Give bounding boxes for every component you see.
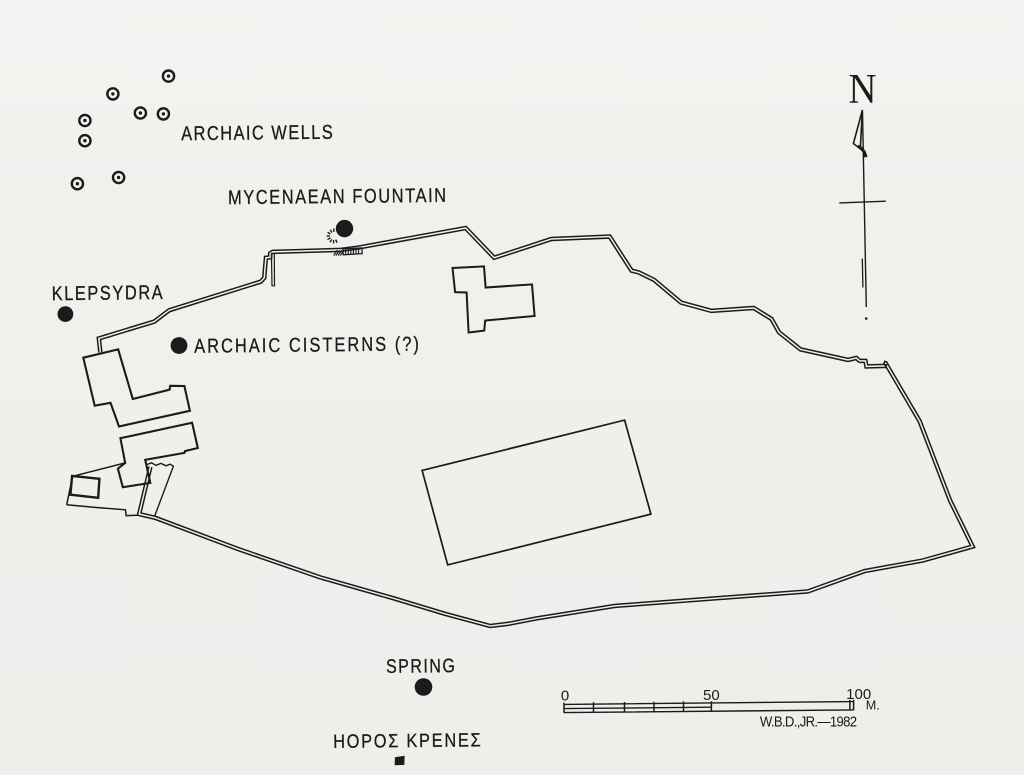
svg-text:KLEPSYDRA: KLEPSYDRA	[52, 280, 164, 304]
svg-text:W.B.D.,JR.—1982: W.B.D.,JR.—1982	[760, 713, 857, 730]
svg-text:0: 0	[561, 688, 569, 705]
svg-text:ΗΟΡΟΣ ΚΡΕΝΕΣ: ΗΟΡΟΣ ΚΡΕΝΕΣ	[333, 729, 481, 752]
svg-text:M.: M.	[866, 699, 880, 713]
svg-text:N: N	[849, 67, 877, 113]
svg-text:MYCENAEAN FOUNTAIN: MYCENAEAN FOUNTAIN	[228, 183, 446, 208]
svg-text:SPRING: SPRING	[386, 655, 455, 678]
svg-text:ARCHAIC CISTERNS (?): ARCHAIC CISTERNS (?)	[194, 332, 419, 357]
